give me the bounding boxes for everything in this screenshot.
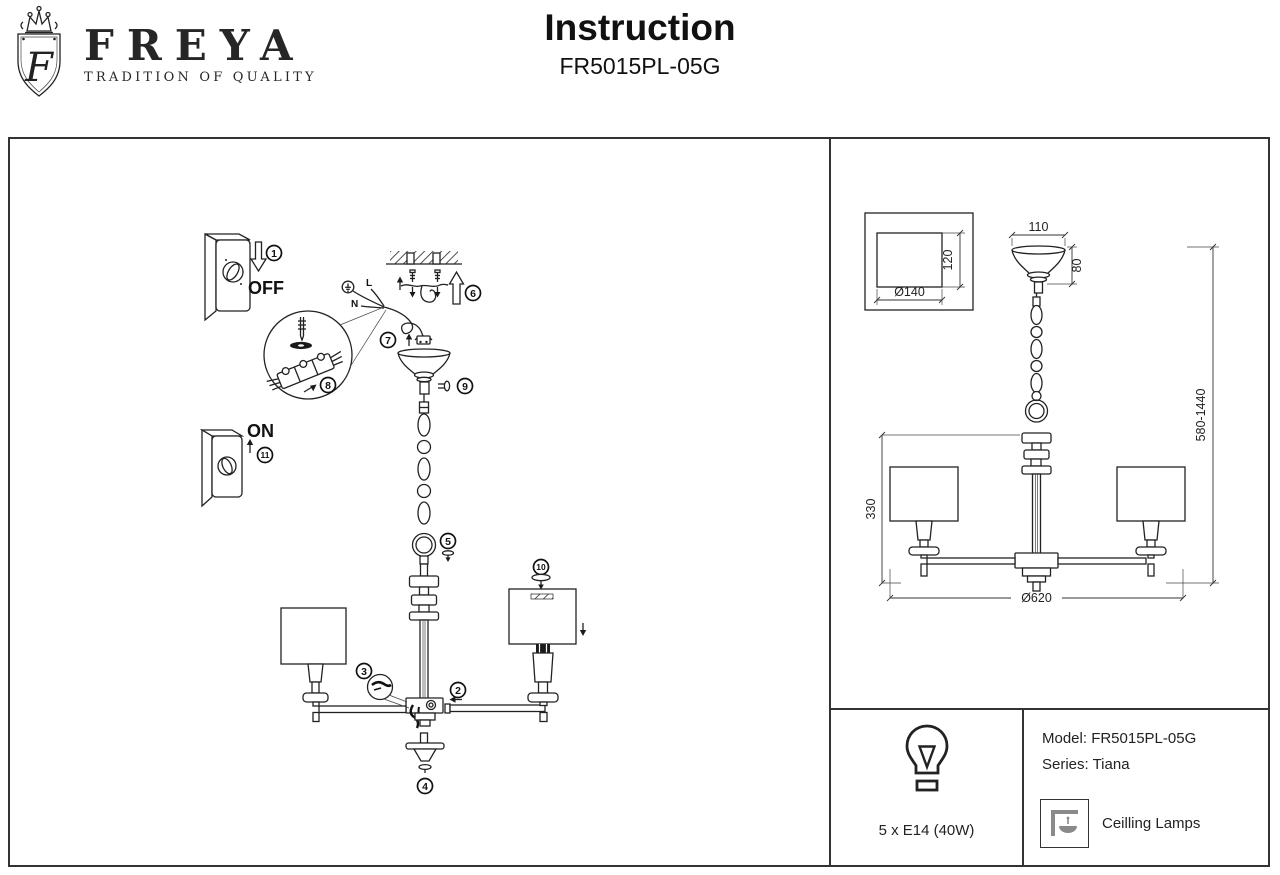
- step-marker-1: 1: [267, 246, 282, 261]
- center-hub: [406, 698, 443, 728]
- brand-name: FREYA: [84, 25, 317, 67]
- canopy-screw: [438, 381, 450, 391]
- category-label: Ceilling Lamps: [1102, 815, 1200, 832]
- step-marker-6: 6: [466, 286, 481, 301]
- bottom-finial: [406, 733, 444, 773]
- model-info-cell: Model: FR5015PL-05G Series: Tiana Ceilli…: [1024, 710, 1268, 865]
- svg-text:4: 4: [422, 781, 428, 793]
- step-marker-8: 8: [321, 378, 336, 393]
- step-marker-11: 11: [258, 448, 273, 463]
- svg-text:580-1440: 580-1440: [1194, 389, 1208, 442]
- switch-off-label: OFF: [248, 278, 284, 298]
- shade-finial-screw: [532, 574, 550, 589]
- svg-text:330: 330: [864, 499, 878, 520]
- svg-text:9: 9: [462, 381, 468, 393]
- svg-text:110: 110: [1029, 220, 1049, 234]
- model-line: Model: FR5015PL-05G: [1042, 730, 1196, 747]
- svg-text:80: 80: [1070, 259, 1084, 273]
- switch-on-label: ON: [247, 421, 274, 441]
- ceiling-mount: [386, 251, 464, 304]
- arrow-up-icon: [450, 272, 464, 304]
- content-frame: 1 OFF ON 11: [8, 137, 1270, 867]
- bulb-icon: [896, 723, 958, 815]
- ceiling-lamp-icon: [1047, 806, 1083, 842]
- terminal-screw: [298, 317, 306, 340]
- model-code: FR5015PL-05G: [440, 53, 840, 80]
- svg-text:Ø140: Ø140: [894, 285, 925, 299]
- wire-live-label: L: [366, 278, 372, 289]
- arrow-up-small-icon: [247, 439, 253, 453]
- arrow-up-small-icon: [406, 334, 412, 347]
- right-shade-assembly: [509, 589, 576, 722]
- svg-text:10: 10: [536, 562, 546, 572]
- logo-letter: F: [24, 45, 54, 91]
- page-title: Instruction: [440, 8, 840, 49]
- arrow-down-small-icon: [580, 623, 586, 636]
- step-marker-3: 3: [357, 664, 372, 679]
- category-row: Ceilling Lamps: [1040, 799, 1200, 848]
- svg-text:11: 11: [261, 450, 270, 460]
- crown-icon: [21, 7, 57, 33]
- svg-text:1: 1: [271, 248, 277, 260]
- right-panel: 120 Ø140: [831, 139, 1268, 865]
- canopy: [398, 336, 450, 394]
- dim-canopy-width: 110: [1009, 220, 1068, 246]
- bulb-spec-cell: 5 x E14 (40W): [831, 710, 1024, 865]
- arrow-down-icon: [251, 242, 266, 271]
- chain: [413, 394, 436, 564]
- power-switch-on: [202, 430, 242, 506]
- svg-text:5: 5: [445, 536, 451, 548]
- left-shade-assembly: [281, 608, 346, 722]
- svg-text:2: 2: [455, 685, 461, 697]
- svg-text:8: 8: [325, 380, 331, 392]
- specs-panel: 5 x E14 (40W) Model: FR5015PL-05G Series…: [831, 708, 1268, 865]
- right-arm: [445, 704, 545, 713]
- assembly-diagram: 1 OFF ON 11: [10, 139, 829, 861]
- step-marker-9: 9: [458, 379, 473, 394]
- ground-symbol-icon: [342, 281, 354, 293]
- left-arm: [319, 706, 406, 713]
- wire-connect-magnifier: [368, 675, 410, 709]
- svg-text:7: 7: [385, 335, 391, 347]
- step-marker-7: 7: [381, 333, 396, 348]
- instruction-sheet: { "header": { "brand": "FREYA", "tagline…: [0, 0, 1280, 875]
- arrow-up-right-icon: [304, 385, 317, 393]
- svg-text:Ø620: Ø620: [1021, 591, 1052, 605]
- freya-logo: F FREYA TRADITION OF QUALITY: [10, 5, 317, 99]
- center-column: [410, 564, 439, 699]
- brand-tagline: TRADITION OF QUALITY: [84, 70, 317, 85]
- arrow-up-small-icon: [397, 277, 403, 291]
- wire-neutral-label: N: [351, 299, 358, 310]
- supply-wires: L N: [342, 278, 423, 336]
- step-marker-10: 10: [534, 560, 549, 575]
- ceiling-lamp-icon-box: [1040, 799, 1089, 848]
- freya-crest-icon: F: [10, 5, 68, 99]
- dimensions-panel: 120 Ø140: [831, 139, 1268, 708]
- dimension-drawing: 120 Ø140: [831, 139, 1268, 708]
- mount-screw-right: [435, 270, 441, 298]
- ring-screw: [443, 551, 454, 562]
- svg-text:120: 120: [941, 250, 955, 271]
- series-line: Series: Tiana: [1042, 756, 1130, 773]
- mount-screw-left: [410, 270, 416, 298]
- power-switch-off: [205, 234, 250, 320]
- step-marker-2: 2: [451, 683, 466, 698]
- body-drawing: [890, 433, 1185, 591]
- assembly-panel: 1 OFF ON 11: [10, 139, 831, 865]
- canopy-front-view: [1012, 246, 1065, 293]
- chain-drawing: [1026, 293, 1048, 422]
- svg-text:6: 6: [470, 288, 476, 300]
- title-block: Instruction FR5015PL-05G: [440, 8, 840, 80]
- svg-text:3: 3: [361, 666, 367, 678]
- step-marker-5: 5: [441, 534, 456, 549]
- dim-hanging-height: 580-1440: [1166, 244, 1219, 586]
- step-marker-4: 4: [418, 779, 433, 794]
- bulb-spec-label: 5 x E14 (40W): [879, 822, 975, 839]
